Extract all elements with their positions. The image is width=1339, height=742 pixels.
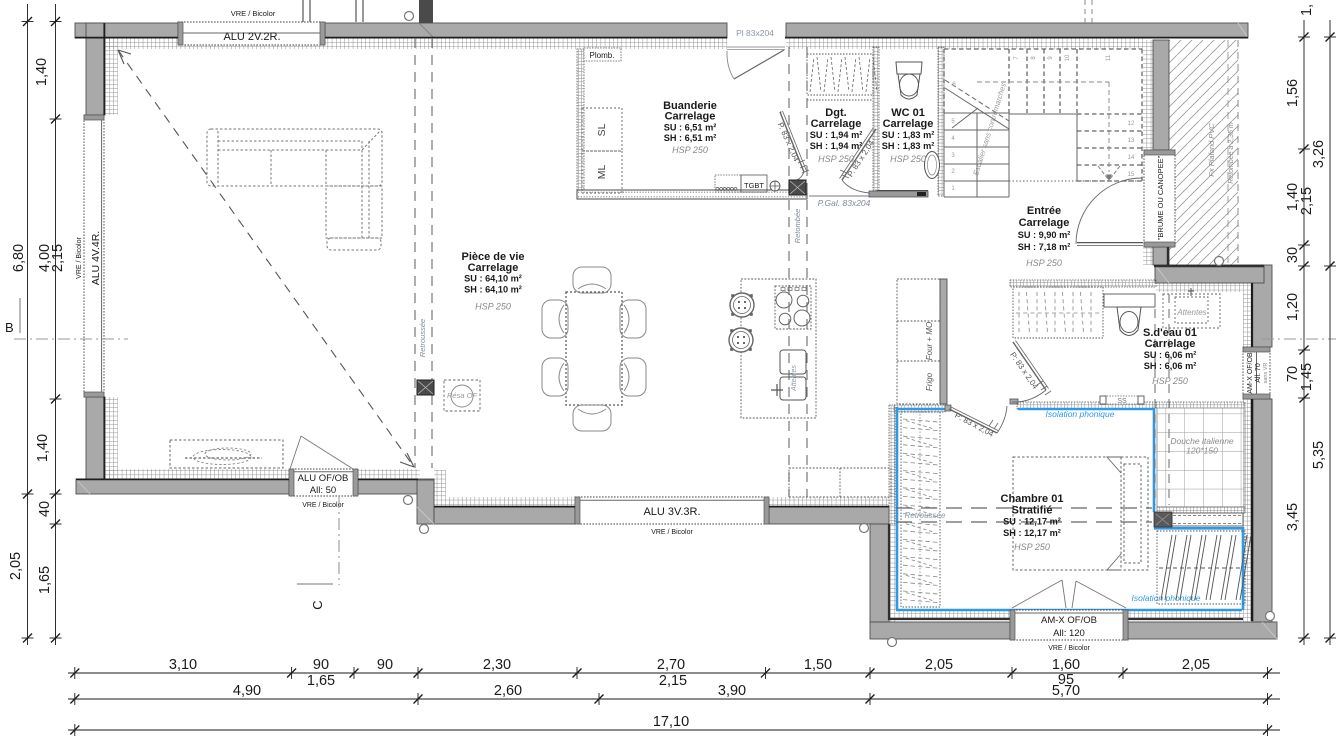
- svg-text:11: 11: [1106, 54, 1112, 61]
- svg-text:Stratifié: Stratifié: [1012, 504, 1053, 516]
- svg-text:2,05: 2,05: [8, 552, 24, 580]
- svg-text:1,45: 1,45: [1299, 363, 1315, 391]
- svg-text:3,10: 3,10: [169, 657, 197, 673]
- svg-text:Isolation phonique: Isolation phonique: [1045, 409, 1114, 419]
- svg-text:SU : 64,10 m²: SU : 64,10 m²: [464, 274, 522, 284]
- svg-text:Retroussée: Retroussée: [905, 511, 946, 520]
- svg-text:Résa OF: Résa OF: [447, 391, 477, 400]
- svg-text:SH : 12,17 m²: SH : 12,17 m²: [1003, 528, 1061, 538]
- svg-text:ALU 4V.4R.: ALU 4V.4R.: [90, 231, 102, 285]
- svg-text:10: 10: [1065, 54, 1071, 61]
- svg-text:VRE / Bicolor: VRE / Bicolor: [651, 529, 693, 536]
- svg-text:VRE / Bicolor: VRE / Bicolor: [231, 9, 276, 18]
- svg-text:2,15: 2,15: [659, 673, 687, 689]
- svg-text:VRE / Bicolor: VRE / Bicolor: [302, 502, 344, 509]
- svg-text:SU : 12,17 m²: SU : 12,17 m²: [1003, 517, 1061, 527]
- svg-text:HSP 250: HSP 250: [1026, 258, 1062, 268]
- svg-text:Retombée à 2,35 m: Retombée à 2,35 m: [1228, 122, 1235, 184]
- svg-text:Douche italienne: Douche italienne: [1170, 436, 1234, 446]
- svg-text:5,70: 5,70: [1052, 683, 1080, 699]
- svg-text:2,05: 2,05: [1182, 657, 1210, 673]
- svg-text:SH : 7,18 m²: SH : 7,18 m²: [1018, 242, 1071, 252]
- svg-text:3,26: 3,26: [1311, 140, 1327, 168]
- svg-text:Fx Plafond PVC: Fx Plafond PVC: [1207, 123, 1216, 177]
- svg-text:ALU 3V.3R.: ALU 3V.3R.: [643, 506, 700, 518]
- svg-text:Entrée: Entrée: [1027, 205, 1061, 217]
- svg-text:SU : 6,51 m²: SU : 6,51 m²: [664, 122, 717, 132]
- svg-text:SS: SS: [1117, 398, 1127, 405]
- svg-text:1,40: 1,40: [34, 58, 50, 86]
- svg-text:sans VR: sans VR: [1263, 363, 1269, 384]
- svg-text:VRE / Bicolor: VRE / Bicolor: [76, 237, 83, 279]
- svg-text:1,56: 1,56: [1285, 79, 1301, 107]
- svg-text:SL: SL: [596, 123, 608, 136]
- svg-text:Chambre 01: Chambre 01: [1001, 493, 1064, 505]
- svg-text:HSP 250: HSP 250: [475, 301, 511, 311]
- svg-text:HSP 250: HSP 250: [890, 154, 926, 164]
- svg-text:AM-X OF/OB: AM-X OF/OB: [1247, 352, 1254, 394]
- svg-text:1,65: 1,65: [307, 673, 335, 689]
- svg-text:6,80: 6,80: [11, 244, 27, 272]
- svg-text:SU : 1,83 m²: SU : 1,83 m²: [882, 130, 935, 140]
- svg-text:Carrelage: Carrelage: [665, 111, 716, 123]
- svg-text:3,90: 3,90: [718, 683, 746, 699]
- svg-text:2,30: 2,30: [483, 657, 511, 673]
- svg-text:C: C: [310, 600, 325, 609]
- svg-text:SH : 1,94 m²: SH : 1,94 m²: [810, 141, 863, 151]
- svg-text:HSP 250: HSP 250: [1152, 376, 1188, 386]
- svg-text:1,65: 1,65: [37, 566, 53, 594]
- svg-text:17,10: 17,10: [653, 714, 689, 730]
- svg-text:14: 14: [1128, 155, 1135, 161]
- svg-text:"BRUME OU CANOPEE": "BRUME OU CANOPEE": [1156, 155, 1165, 240]
- svg-text:Carrelage: Carrelage: [811, 118, 862, 130]
- svg-text:40: 40: [37, 501, 53, 517]
- svg-text:13: 13: [1128, 138, 1135, 144]
- svg-text:90: 90: [377, 657, 393, 673]
- svg-text:Retroussée: Retroussée: [418, 319, 427, 357]
- svg-text:ML: ML: [596, 165, 608, 180]
- svg-text:SH : 6,06 m²: SH : 6,06 m²: [1144, 361, 1197, 371]
- svg-text:HSP 250: HSP 250: [818, 154, 854, 164]
- svg-text:SU : 1,94 m²: SU : 1,94 m²: [810, 130, 863, 140]
- svg-text:4,90: 4,90: [233, 683, 261, 699]
- svg-text:SH : 6,51 m²: SH : 6,51 m²: [664, 133, 717, 143]
- svg-text:1,20: 1,20: [1285, 293, 1301, 321]
- svg-text:SU : 6,06 m²: SU : 6,06 m²: [1144, 350, 1197, 360]
- svg-text:All: 50: All: 50: [310, 485, 336, 496]
- svg-text:1,60: 1,60: [1052, 657, 1080, 673]
- svg-text:5,35: 5,35: [1311, 441, 1327, 469]
- svg-text:2,05: 2,05: [925, 657, 953, 673]
- svg-text:1,50: 1,50: [804, 657, 832, 673]
- svg-text:Carrelage: Carrelage: [883, 118, 934, 130]
- svg-text:2,15: 2,15: [1299, 187, 1315, 215]
- svg-text:TGBT: TGBT: [744, 181, 764, 190]
- svg-text:SU : 9,90 m²: SU : 9,90 m²: [1018, 230, 1071, 240]
- svg-text:12: 12: [1128, 121, 1135, 127]
- svg-text:ALU 2V.2R.: ALU 2V.2R.: [223, 31, 280, 43]
- svg-text:Carrelage: Carrelage: [468, 262, 519, 274]
- svg-text:All: 70: All: 70: [1255, 363, 1262, 383]
- svg-text:SH : 1,83 m²: SH : 1,83 m²: [882, 141, 935, 151]
- svg-text:Attentes: Attentes: [1176, 308, 1206, 317]
- svg-text:ALU OF/OB: ALU OF/OB: [298, 473, 349, 484]
- svg-text:B: B: [5, 320, 14, 335]
- svg-text:HSP 250: HSP 250: [672, 145, 708, 155]
- svg-text:90: 90: [313, 657, 329, 673]
- svg-text:2,70: 2,70: [657, 657, 685, 673]
- svg-text:Carrelage: Carrelage: [1019, 217, 1070, 229]
- svg-text:SH : 64,10 m²: SH : 64,10 m²: [464, 284, 522, 294]
- svg-text:HSP 250: HSP 250: [1014, 542, 1050, 552]
- svg-text:Plomb.: Plomb.: [590, 51, 615, 60]
- svg-text:30: 30: [1285, 247, 1301, 263]
- svg-text:1,: 1,: [1299, 4, 1315, 16]
- svg-text:2,15: 2,15: [50, 244, 66, 272]
- svg-text:15: 15: [1128, 172, 1135, 178]
- svg-text:Four + MO: Four + MO: [925, 322, 934, 360]
- svg-text:Carrelage: Carrelage: [1145, 338, 1196, 350]
- svg-text:Attentes: Attentes: [791, 365, 798, 392]
- svg-text:AM-X OF/OB: AM-X OF/OB: [1041, 615, 1097, 626]
- svg-text:1,40: 1,40: [35, 434, 51, 462]
- svg-text:Pl 83x204: Pl 83x204: [736, 28, 774, 38]
- svg-text:VRE / Bicolor: VRE / Bicolor: [1048, 645, 1090, 652]
- svg-text:Retombée: Retombée: [793, 209, 802, 244]
- svg-text:2,60: 2,60: [494, 683, 522, 699]
- svg-text:Frigo: Frigo: [925, 372, 934, 391]
- svg-text:120*150: 120*150: [1186, 446, 1218, 456]
- svg-text:P.Gal. 83x204: P.Gal. 83x204: [818, 198, 871, 208]
- svg-text:3,45: 3,45: [1285, 503, 1301, 531]
- svg-text:All: 120: All: 120: [1053, 628, 1085, 639]
